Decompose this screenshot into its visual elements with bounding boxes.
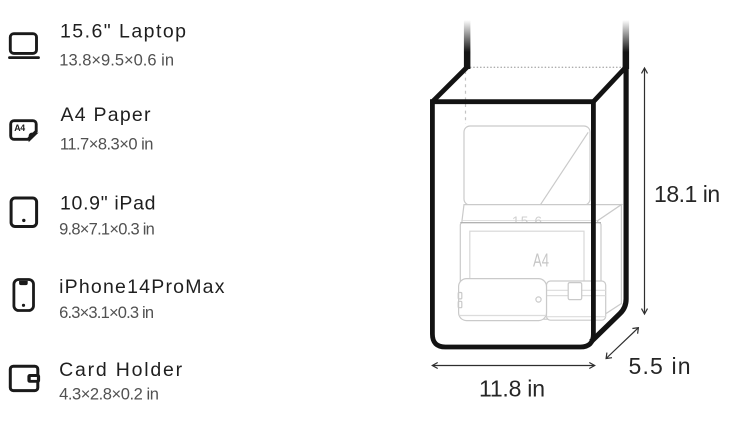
svg-text:A4: A4: [14, 123, 25, 133]
svg-text:11.8 in: 11.8 in: [479, 375, 545, 401]
svg-text:A4 Paper: A4 Paper: [61, 104, 152, 126]
svg-text:11.7×8.3×0 in: 11.7×8.3×0 in: [60, 136, 153, 154]
svg-text:10.9" iPad: 10.9" iPad: [60, 193, 156, 215]
svg-text:18.1 in: 18.1 in: [654, 181, 720, 207]
svg-text:iPhone14ProMax: iPhone14ProMax: [59, 276, 225, 298]
svg-text:4.3×2.8×0.2 in: 4.3×2.8×0.2 in: [59, 386, 159, 404]
svg-text:15.6" Laptop: 15.6" Laptop: [60, 21, 186, 43]
svg-text:5.5 in: 5.5 in: [629, 353, 691, 379]
svg-text:Card Holder: Card Holder: [59, 359, 183, 381]
svg-text:9.8×7.1×0.3 in: 9.8×7.1×0.3 in: [59, 220, 155, 238]
svg-text:6.3×3.1×0.3 in: 6.3×3.1×0.3 in: [59, 304, 154, 322]
svg-text:13.8×9.5×0.6 in: 13.8×9.5×0.6 in: [59, 51, 174, 69]
svg-text:A4: A4: [533, 251, 549, 271]
